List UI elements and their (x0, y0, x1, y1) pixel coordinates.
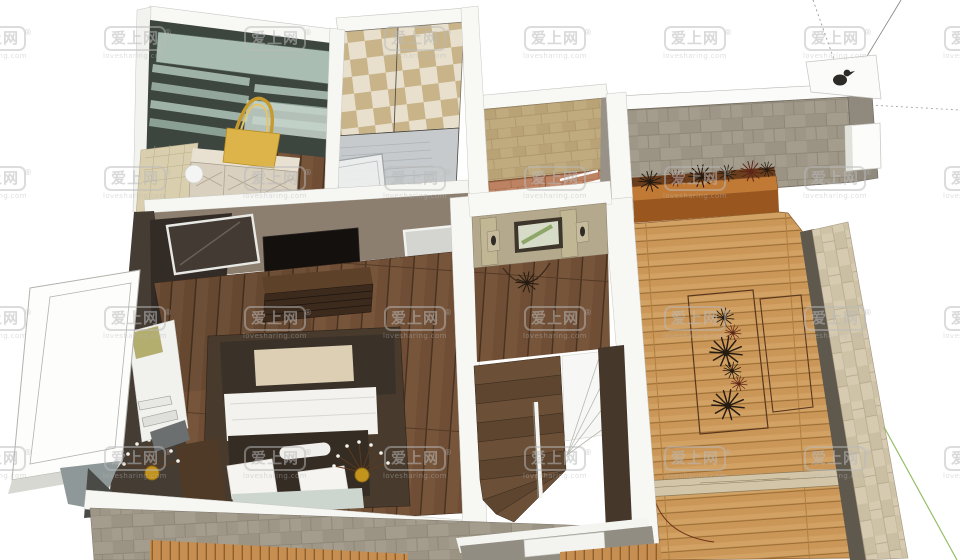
tan-tile-wall (476, 98, 604, 183)
bedroom (108, 180, 480, 528)
sphere-lamp (185, 165, 203, 183)
bed-runner (254, 345, 354, 386)
balcony-ledge (12, 270, 140, 480)
bolster-pillow (286, 449, 324, 453)
hall-floor (474, 254, 610, 362)
checker-tile-wall (336, 22, 464, 136)
bed (202, 327, 410, 514)
framed-picture (514, 217, 563, 253)
walkin-closet (133, 6, 345, 215)
floorplan-3d-scene (0, 0, 960, 560)
sketchup-viewport[interactable]: 爱上网®lovesharing.com爱上网®lovesharing.com爱上… (0, 0, 960, 560)
pillar-shade (845, 125, 853, 171)
